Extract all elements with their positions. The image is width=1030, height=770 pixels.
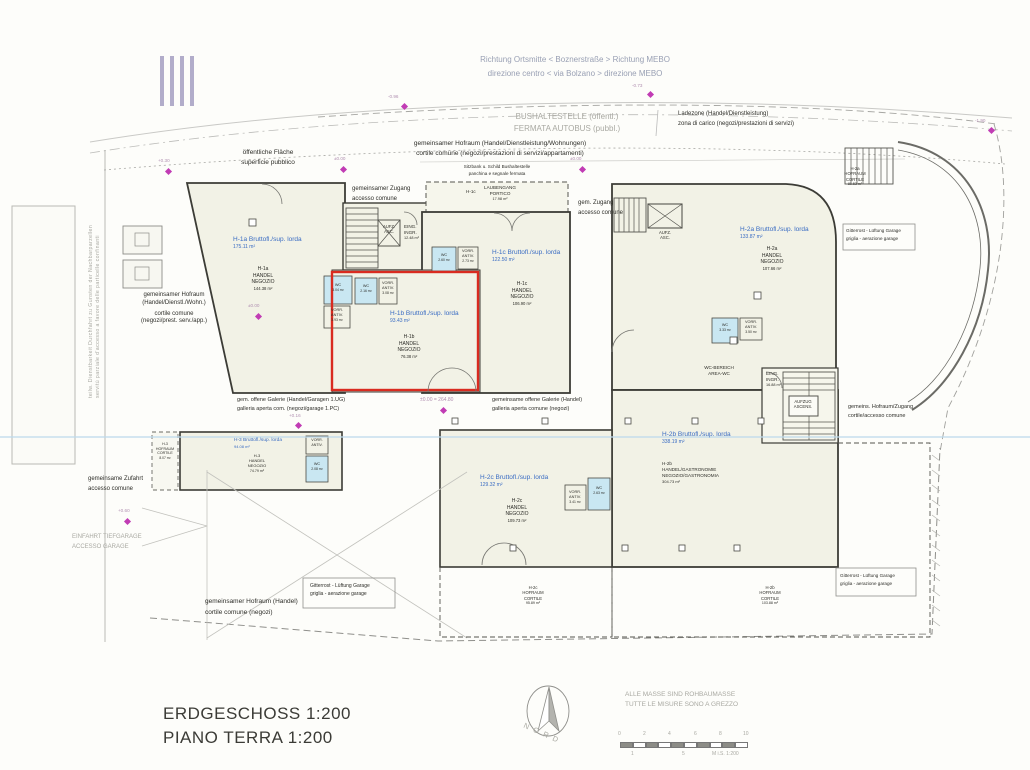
unit-h3-net-area: 74.79 m² bbox=[248, 469, 266, 474]
servitude-note-de: teilw. Dienstbarkeit Durchfahrt zu Gunst… bbox=[88, 146, 95, 398]
unit-h1a-gross-area: 175.11 m² bbox=[233, 244, 302, 251]
scale-tick-6: 6 bbox=[694, 731, 697, 738]
room-vorr-h1a-area: 3.93 m² bbox=[331, 318, 343, 322]
unit-h1a-gross-label: H-1a Bruttofl./sup. lorda 175.11 m² bbox=[233, 236, 302, 251]
laubengang-label: LAUBENGANG PORTICO 17.98 m² bbox=[484, 185, 516, 202]
zugang2-it: accesso comune bbox=[578, 210, 623, 218]
sitzbank-de: Sitzbank u. Schild Bushaltestelle bbox=[464, 164, 530, 170]
courtyard-h2b-label: H-2b HOFRAUM CORTILE 103.88 m² bbox=[759, 585, 780, 606]
floor-plan-sheet: Richtung Ortsmitte < Boznerstraße > Rich… bbox=[0, 0, 1030, 770]
unit-h1c-use-label: H-1c HANDEL NEGOZIO 106.90 m² bbox=[510, 281, 533, 306]
unit-h1c-net-area: 106.90 m² bbox=[510, 301, 533, 306]
room-wc-h1b: WC 2.16 m² bbox=[360, 284, 372, 293]
room-vorr-h1b: VORR. ANTIV. 3.08 m² bbox=[382, 281, 394, 295]
wc-zone-l2: AREA-WC bbox=[704, 371, 734, 377]
scale-subtick-5: 5 bbox=[682, 751, 685, 758]
datum-label: ±0.00 = 264.80 bbox=[420, 397, 453, 404]
unit-h1c-gross: H-1c Bruttofl./sup. lorda bbox=[492, 249, 560, 257]
room-vorr-h1c-area: 2.73 m² bbox=[462, 259, 474, 263]
gitterrost-center-de: Gitterrost - Lüftung Garage bbox=[310, 583, 370, 590]
einfahrt-it: ACCESSO GARAGE bbox=[72, 544, 129, 552]
room-vorr-h1a: VORR. ANTIV. 3.93 m² bbox=[331, 308, 343, 322]
hofraum-bottom-de: gemeinsamer Hofraum (Handel) bbox=[205, 598, 298, 606]
room-wc-h1a: WC 3.04 m² bbox=[332, 283, 344, 292]
public-area-de: öffentliche Fläche bbox=[243, 149, 294, 157]
einfahrt-de: EINFAHRT TIEFGARAGE bbox=[72, 534, 142, 542]
unit-h2b-use-label: H-2b HANDEL/GASTRONOMIE NEGOZIO/GASTRONO… bbox=[662, 461, 719, 484]
entrance-h2-area: 16.88 m² bbox=[766, 383, 781, 388]
unit-h1c-gross-label: H-1c Bruttofl./sup. lorda 122.50 m² bbox=[492, 249, 560, 264]
scale-bar-segment bbox=[633, 742, 646, 748]
room-vorr-h1b-area: 3.08 m² bbox=[382, 291, 394, 295]
zufahrt-de: gemeinsame Zufahrt bbox=[88, 476, 143, 484]
busstop-label-de: BUSHALTESTELLE (öffentl.) bbox=[516, 112, 619, 122]
scale-tick-0: 0 bbox=[618, 731, 621, 738]
hofraum-left-it2: (negozi/prest. serv./app.) bbox=[110, 318, 238, 326]
hofraum-left-de: gemeinsamer Hofraum bbox=[110, 292, 238, 300]
unit-h1b-gross-area: 93.43 m² bbox=[390, 318, 459, 325]
servitude-note: teilw. Dienstbarkeit Durchfahrt zu Gunst… bbox=[88, 146, 102, 398]
marker-m2: ±0.00 bbox=[334, 156, 345, 162]
unit-h2c-gross-area: 129.32 m² bbox=[480, 482, 548, 489]
marker-m4: ±0.00 bbox=[248, 303, 259, 309]
wc-zone-label: WC-BEREICH AREA-WC bbox=[704, 365, 734, 377]
scale-subtick-1: 1 bbox=[631, 751, 634, 758]
unit-h2c-gross-label: H-2c Bruttofl./sup. lorda 129.32 m² bbox=[480, 474, 548, 489]
scale-bar-segment bbox=[697, 742, 710, 748]
unit-h1b-net-area: 76.38 m² bbox=[397, 354, 420, 359]
elevator-h1-l2: ASC. bbox=[383, 229, 395, 234]
courtyard-h2a-area: 81.53 m² bbox=[844, 182, 865, 187]
unit-h1c-gross-area: 122.50 m² bbox=[492, 257, 560, 264]
scale-bar-segment bbox=[658, 742, 671, 748]
hofraum-left-de2: (Handel/Dienstl./Wohn.) bbox=[110, 300, 238, 308]
gitterrost-right-bottom-it: griglia - aerazione garage bbox=[840, 581, 892, 587]
garage-ramp bbox=[142, 470, 467, 640]
marker-m6: -0.96 bbox=[388, 94, 398, 100]
unit-h3-gross-label: H-3 Bruttofl./sup. lorda 94.08 m² bbox=[234, 438, 282, 449]
courtyard-h2c-area: 95.89 m² bbox=[522, 601, 543, 606]
courtyard-h2b-area: 103.88 m² bbox=[759, 601, 780, 606]
scale-bar-segment bbox=[735, 742, 748, 748]
unit-h3-use2: NEGOZIO bbox=[248, 463, 266, 468]
elevator-h2a-l2: ASC. bbox=[659, 235, 671, 240]
galerie2-de: gemeinsame offene Galerie (Handel) bbox=[492, 397, 582, 404]
unit-h2a-use2: NEGOZIO bbox=[760, 259, 783, 266]
scale-bar-segment bbox=[722, 742, 735, 748]
gitterrost-right-bottom-de: Gitterrost - Lüftung Garage bbox=[840, 573, 895, 579]
room-wc-h2c-area: 2.63 m² bbox=[593, 491, 605, 495]
laubengang-area: 17.98 m² bbox=[484, 197, 516, 202]
room-vorr-h2a: VORR. ANTIV. 3.50 m² bbox=[745, 320, 757, 334]
servitude-note-it: servitù parziale d'accesso a favore dell… bbox=[95, 146, 102, 398]
entrance-h2-label: EING. INGR. 16.88 m² bbox=[766, 371, 781, 388]
scale-bar-segment bbox=[671, 742, 684, 748]
room-vorr-h3: VORR. ANTIV. bbox=[311, 438, 322, 447]
unit-h1a-gross: H-1a Bruttofl./sup. lorda bbox=[233, 236, 302, 244]
ladezone-label-de: Ladezone (Handel/Dienstleistung) bbox=[678, 111, 768, 119]
room-wc-h1a-area: 3.04 m² bbox=[332, 288, 344, 292]
scale-bar-segment bbox=[620, 742, 633, 748]
unit-h1b-use-label: H-1b HANDEL NEGOZIO 76.38 m² bbox=[397, 334, 420, 359]
sitzbank-it: panchina e segnale fermata bbox=[469, 171, 526, 177]
room-vorr-h1c: VORR. ANTIV. 2.73 m² bbox=[462, 249, 474, 263]
marker-m7: -1.90 bbox=[975, 118, 985, 124]
zugang2-de: gem. Zugang bbox=[578, 200, 613, 208]
hofzugang-it: cortile/accesso comune bbox=[848, 413, 905, 420]
zufahrt-it: accesso comune bbox=[88, 486, 133, 494]
hofraum-left-it: cortile comune bbox=[110, 311, 238, 319]
hofraum-bottom-it: cortile comune (negozi) bbox=[205, 609, 273, 617]
hofraum-top-it: cortile comune (negozi/prestazioni di se… bbox=[416, 150, 584, 158]
scale-tick-2: 2 bbox=[643, 731, 646, 738]
unit-h1b-gross: H-1b Bruttofl./sup. lorda bbox=[390, 310, 459, 318]
crosswalk-hatch bbox=[160, 56, 200, 106]
room-wc-h2a-area: 3.33 m² bbox=[719, 328, 731, 332]
gitterrost-right-top-de: Gitterrost - Lüftung Garage bbox=[846, 228, 901, 234]
zugang1-it: accesso comune bbox=[352, 196, 397, 204]
unit-h3-gross-area: 94.08 m² bbox=[234, 444, 282, 449]
unit-h2a-net-area: 107.66 m² bbox=[760, 266, 783, 271]
unit-h2a-use-label: H-2a HANDEL NEGOZIO 107.66 m² bbox=[760, 246, 783, 271]
unit-h1b-use2: NEGOZIO bbox=[397, 347, 420, 354]
gitterrost-right-top-it: griglia - aerazione garage bbox=[846, 236, 898, 242]
unit-h2c-use-label: H-2c HANDEL NEGOZIO 109.73 m² bbox=[505, 498, 528, 523]
unit-h1a-net-area: 144.38 m² bbox=[251, 286, 274, 291]
entrance-h1-label: EING. INGR. 12.48 m² bbox=[404, 224, 419, 241]
room-vorr-h2c-area: 3.41 m² bbox=[569, 500, 581, 504]
courtyard-h3-label: H-3 HOFRAUM CORTILE 8.07 m² bbox=[156, 442, 174, 460]
room-vorr-h2c: VORR. ANTIV. 3.41 m² bbox=[569, 490, 581, 504]
room-wc-h1b-area: 2.16 m² bbox=[360, 289, 372, 293]
marker-m5: -0.73 bbox=[632, 83, 642, 89]
hofraum-left: gemeinsamer Hofraum (Handel/Dienstl./Woh… bbox=[110, 292, 238, 326]
unit-h1a-use2: NEGOZIO bbox=[251, 279, 274, 286]
scale-tick-10: 10 bbox=[743, 731, 749, 738]
public-area-it: superficie pubblico bbox=[241, 159, 295, 167]
measure-note-it: TUTTE LE MISURE SONO A GREZZO bbox=[625, 701, 738, 709]
hofzugang-de: gemeins. Hofraum/Zugang bbox=[848, 404, 913, 411]
room-vorr-h3-l1: VORR. bbox=[311, 438, 322, 443]
unit-h2c-use2: NEGOZIO bbox=[505, 511, 528, 518]
marker-m3: ±0.00 bbox=[570, 156, 581, 162]
unit-h1a-use-label: H-1a HANDEL NEGOZIO 144.38 m² bbox=[251, 266, 274, 291]
elevator-h2b-label: AUFZUG ASCENS. bbox=[794, 399, 812, 410]
unit-h2b-gross: H-2b Bruttofl./sup. lorda bbox=[662, 431, 731, 439]
gitterrost-center-it: griglia - aerazione garage bbox=[310, 591, 367, 598]
marker-m9: +0.60 bbox=[118, 508, 130, 514]
elevator-h1-label: AUFZ. ASC. bbox=[383, 224, 395, 235]
unit-h2a-gross: H-2a Bruttofl./sup. lorda bbox=[740, 226, 809, 234]
room-wc-h2a: WC 3.33 m² bbox=[719, 323, 731, 332]
courtyard-h2a-label: H-2a HOFRAUM CORTILE 81.53 m² bbox=[844, 166, 865, 187]
room-wc-h2c: WC 2.63 m² bbox=[593, 486, 605, 495]
marker-m1: +0.30 bbox=[158, 158, 170, 164]
scale-bar-segment bbox=[646, 742, 659, 748]
scale-ratio-label: M i.S. 1:200 bbox=[712, 751, 739, 758]
unit-h1c-use2: NEGOZIO bbox=[510, 294, 533, 301]
scale-bar-segment bbox=[684, 742, 697, 748]
room-vorr-h3-l2: ANTIV. bbox=[311, 443, 322, 448]
street-direction-de: Richtung Ortsmitte < Boznerstraße > Rich… bbox=[480, 55, 670, 65]
scale-bar-segment bbox=[710, 742, 723, 748]
galerie1-de: gem. offene Galerie (Handel/Garagen 1.UG… bbox=[237, 397, 345, 404]
unit-h3-use-label: H-3 HANDEL NEGOZIO 74.79 m² bbox=[248, 453, 266, 473]
room-vorr-h2a-area: 3.50 m² bbox=[745, 330, 757, 334]
room-wc-h3: WC 2.08 m² bbox=[311, 462, 323, 471]
ladezone-label-it: zona di carico (negozi/prestazioni di se… bbox=[678, 121, 794, 129]
zugang1-de: gemeinsamer Zugang bbox=[352, 186, 410, 194]
right-retaining-walls bbox=[898, 142, 989, 410]
unit-h2c-net-area: 109.73 m² bbox=[505, 518, 528, 523]
elevator-h2a-label: AUFZ. ASC. bbox=[659, 230, 671, 241]
unit-h2c-gross: H-2c Bruttofl./sup. lorda bbox=[480, 474, 548, 482]
room-wc-h1c: WC 2.60 m² bbox=[438, 253, 450, 262]
busstop-label-it: FERMATA AUTOBUS (pubbl.) bbox=[514, 124, 620, 134]
laubengang-code: H-1c bbox=[466, 189, 476, 195]
room-wc-h3-area: 2.08 m² bbox=[311, 467, 323, 471]
measure-note-de: ALLE MASSE SIND ROHBAUMASSE bbox=[625, 691, 735, 699]
unit-h2a-gross-area: 133.87 m² bbox=[740, 234, 809, 241]
courtyard-h2c-label: H-2c HOFRAUM CORTILE 95.89 m² bbox=[522, 585, 543, 606]
elevator-h2b-l2: ASCENS. bbox=[794, 404, 812, 409]
unit-h1b-gross-label: H-1b Bruttofl./sup. lorda 93.43 m² bbox=[390, 310, 459, 325]
marker-m8: +0.16 bbox=[289, 413, 301, 419]
unit-h2b-gross-area: 338.19 m² bbox=[662, 439, 731, 446]
room-wc-h1c-area: 2.60 m² bbox=[438, 258, 450, 262]
scale-tick-4: 4 bbox=[668, 731, 671, 738]
unit-h2b-gross-label: H-2b Bruttofl./sup. lorda 338.19 m² bbox=[662, 431, 731, 446]
unit-h2a-gross-label: H-2a Bruttofl./sup. lorda 133.87 m² bbox=[740, 226, 809, 241]
sheet-title-de: ERDGESCHOSS 1:200 bbox=[163, 703, 351, 725]
courtyard-h3-area: 8.07 m² bbox=[156, 456, 174, 460]
galerie2-it: galleria aperta comune (negozi) bbox=[492, 406, 569, 413]
unit-h2b-net-area: 304.73 m² bbox=[662, 479, 719, 484]
scale-bar bbox=[620, 742, 748, 748]
sheet-title-it: PIANO TERRA 1:200 bbox=[163, 727, 333, 749]
street-direction-it: direzione centro < via Bolzano > direzio… bbox=[488, 69, 663, 79]
scale-tick-8: 8 bbox=[719, 731, 722, 738]
hofraum-top-de: gemeinsamer Hofraum (Handel/Dienstleistu… bbox=[414, 140, 586, 148]
entrance-h1-area: 12.48 m² bbox=[404, 236, 419, 241]
